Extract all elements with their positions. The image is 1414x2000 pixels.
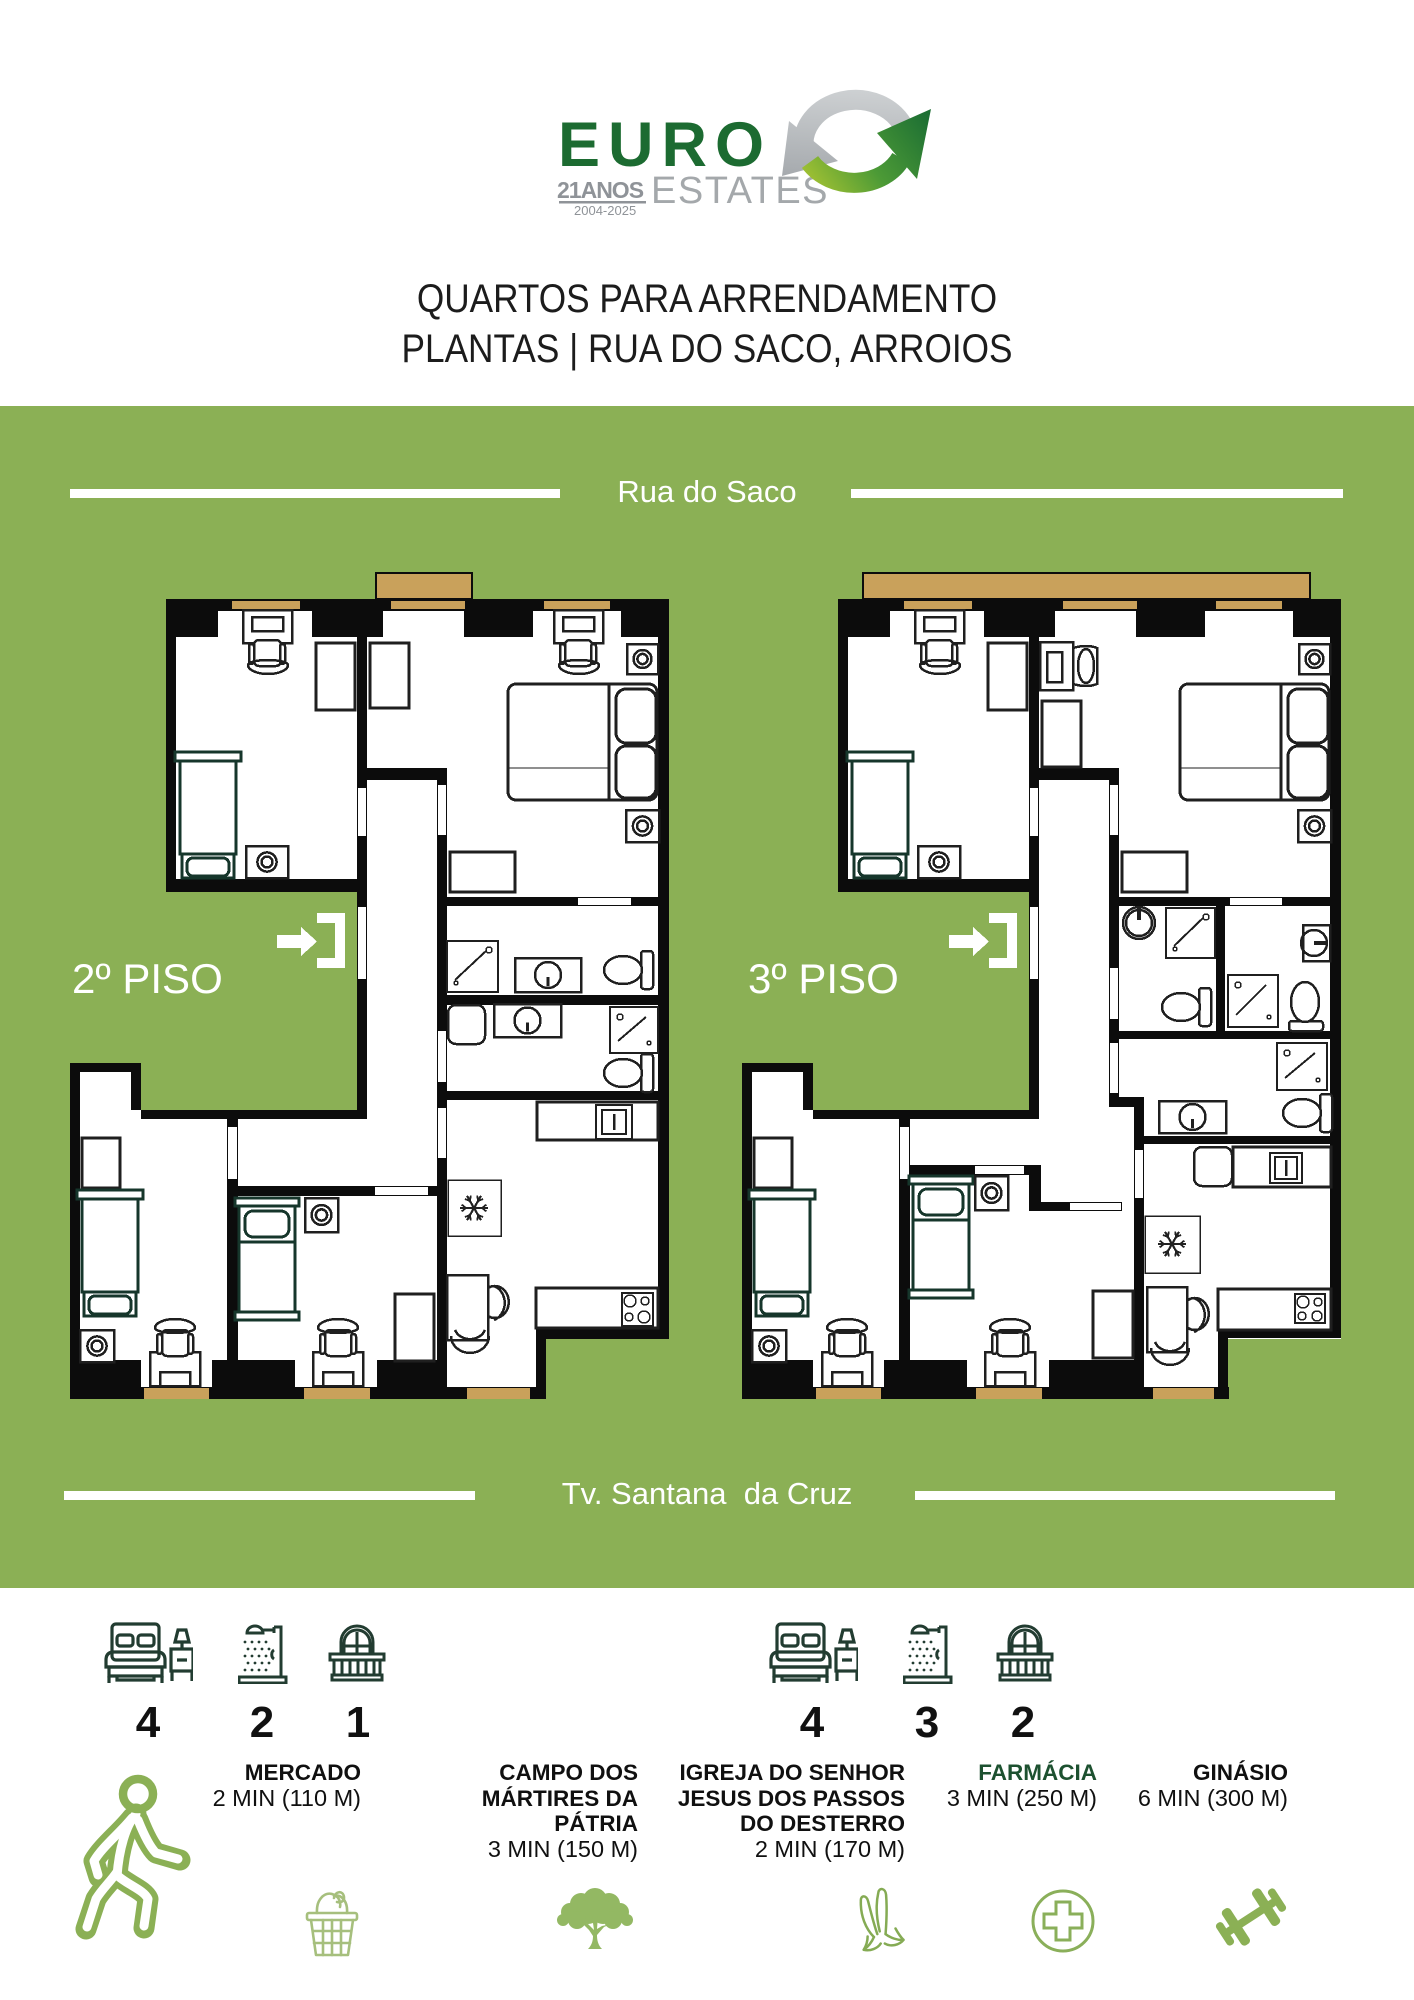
svg-text:ESTATES: ESTATES (651, 170, 829, 212)
svg-text:21ANOS: 21ANOS (557, 177, 644, 203)
svg-text:2004-2025: 2004-2025 (574, 203, 636, 218)
